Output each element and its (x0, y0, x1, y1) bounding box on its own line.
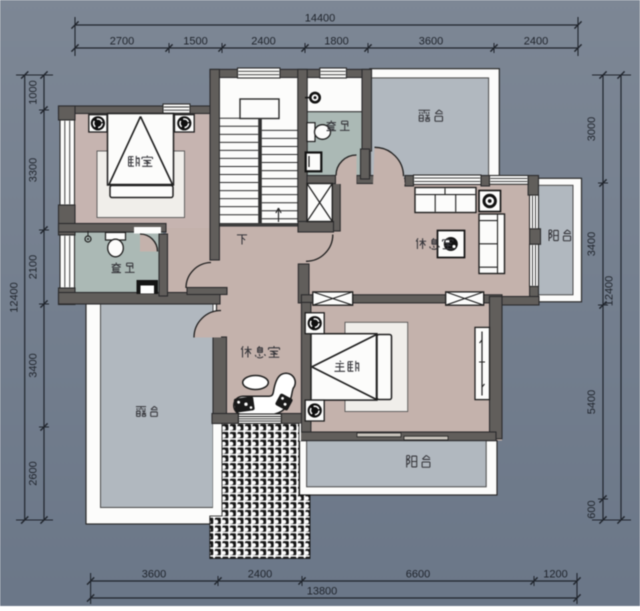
svg-text:3600: 3600 (142, 569, 166, 581)
svg-text:3000: 3000 (586, 117, 598, 141)
svg-text:1500: 1500 (183, 36, 207, 48)
svg-text:2700: 2700 (110, 36, 134, 48)
svg-text:3400: 3400 (28, 353, 40, 377)
svg-text:12400: 12400 (9, 282, 21, 313)
svg-text:1200: 1200 (543, 569, 567, 581)
svg-text:2400: 2400 (248, 569, 272, 581)
svg-text:12400: 12400 (604, 276, 616, 307)
svg-text:2400: 2400 (251, 36, 275, 48)
svg-text:1800: 1800 (324, 36, 348, 48)
svg-text:2600: 2600 (28, 461, 40, 485)
svg-text:13800: 13800 (307, 586, 338, 598)
svg-text:6600: 6600 (406, 569, 430, 581)
svg-text:600: 600 (586, 500, 598, 518)
svg-text:2100: 2100 (28, 255, 40, 279)
svg-text:3400: 3400 (586, 232, 598, 256)
svg-text:14400: 14400 (305, 13, 336, 25)
svg-text:2400: 2400 (524, 36, 548, 48)
svg-text:1000: 1000 (28, 80, 40, 104)
svg-text:3600: 3600 (419, 36, 443, 48)
svg-text:5400: 5400 (586, 390, 598, 414)
svg-text:3300: 3300 (28, 158, 40, 182)
